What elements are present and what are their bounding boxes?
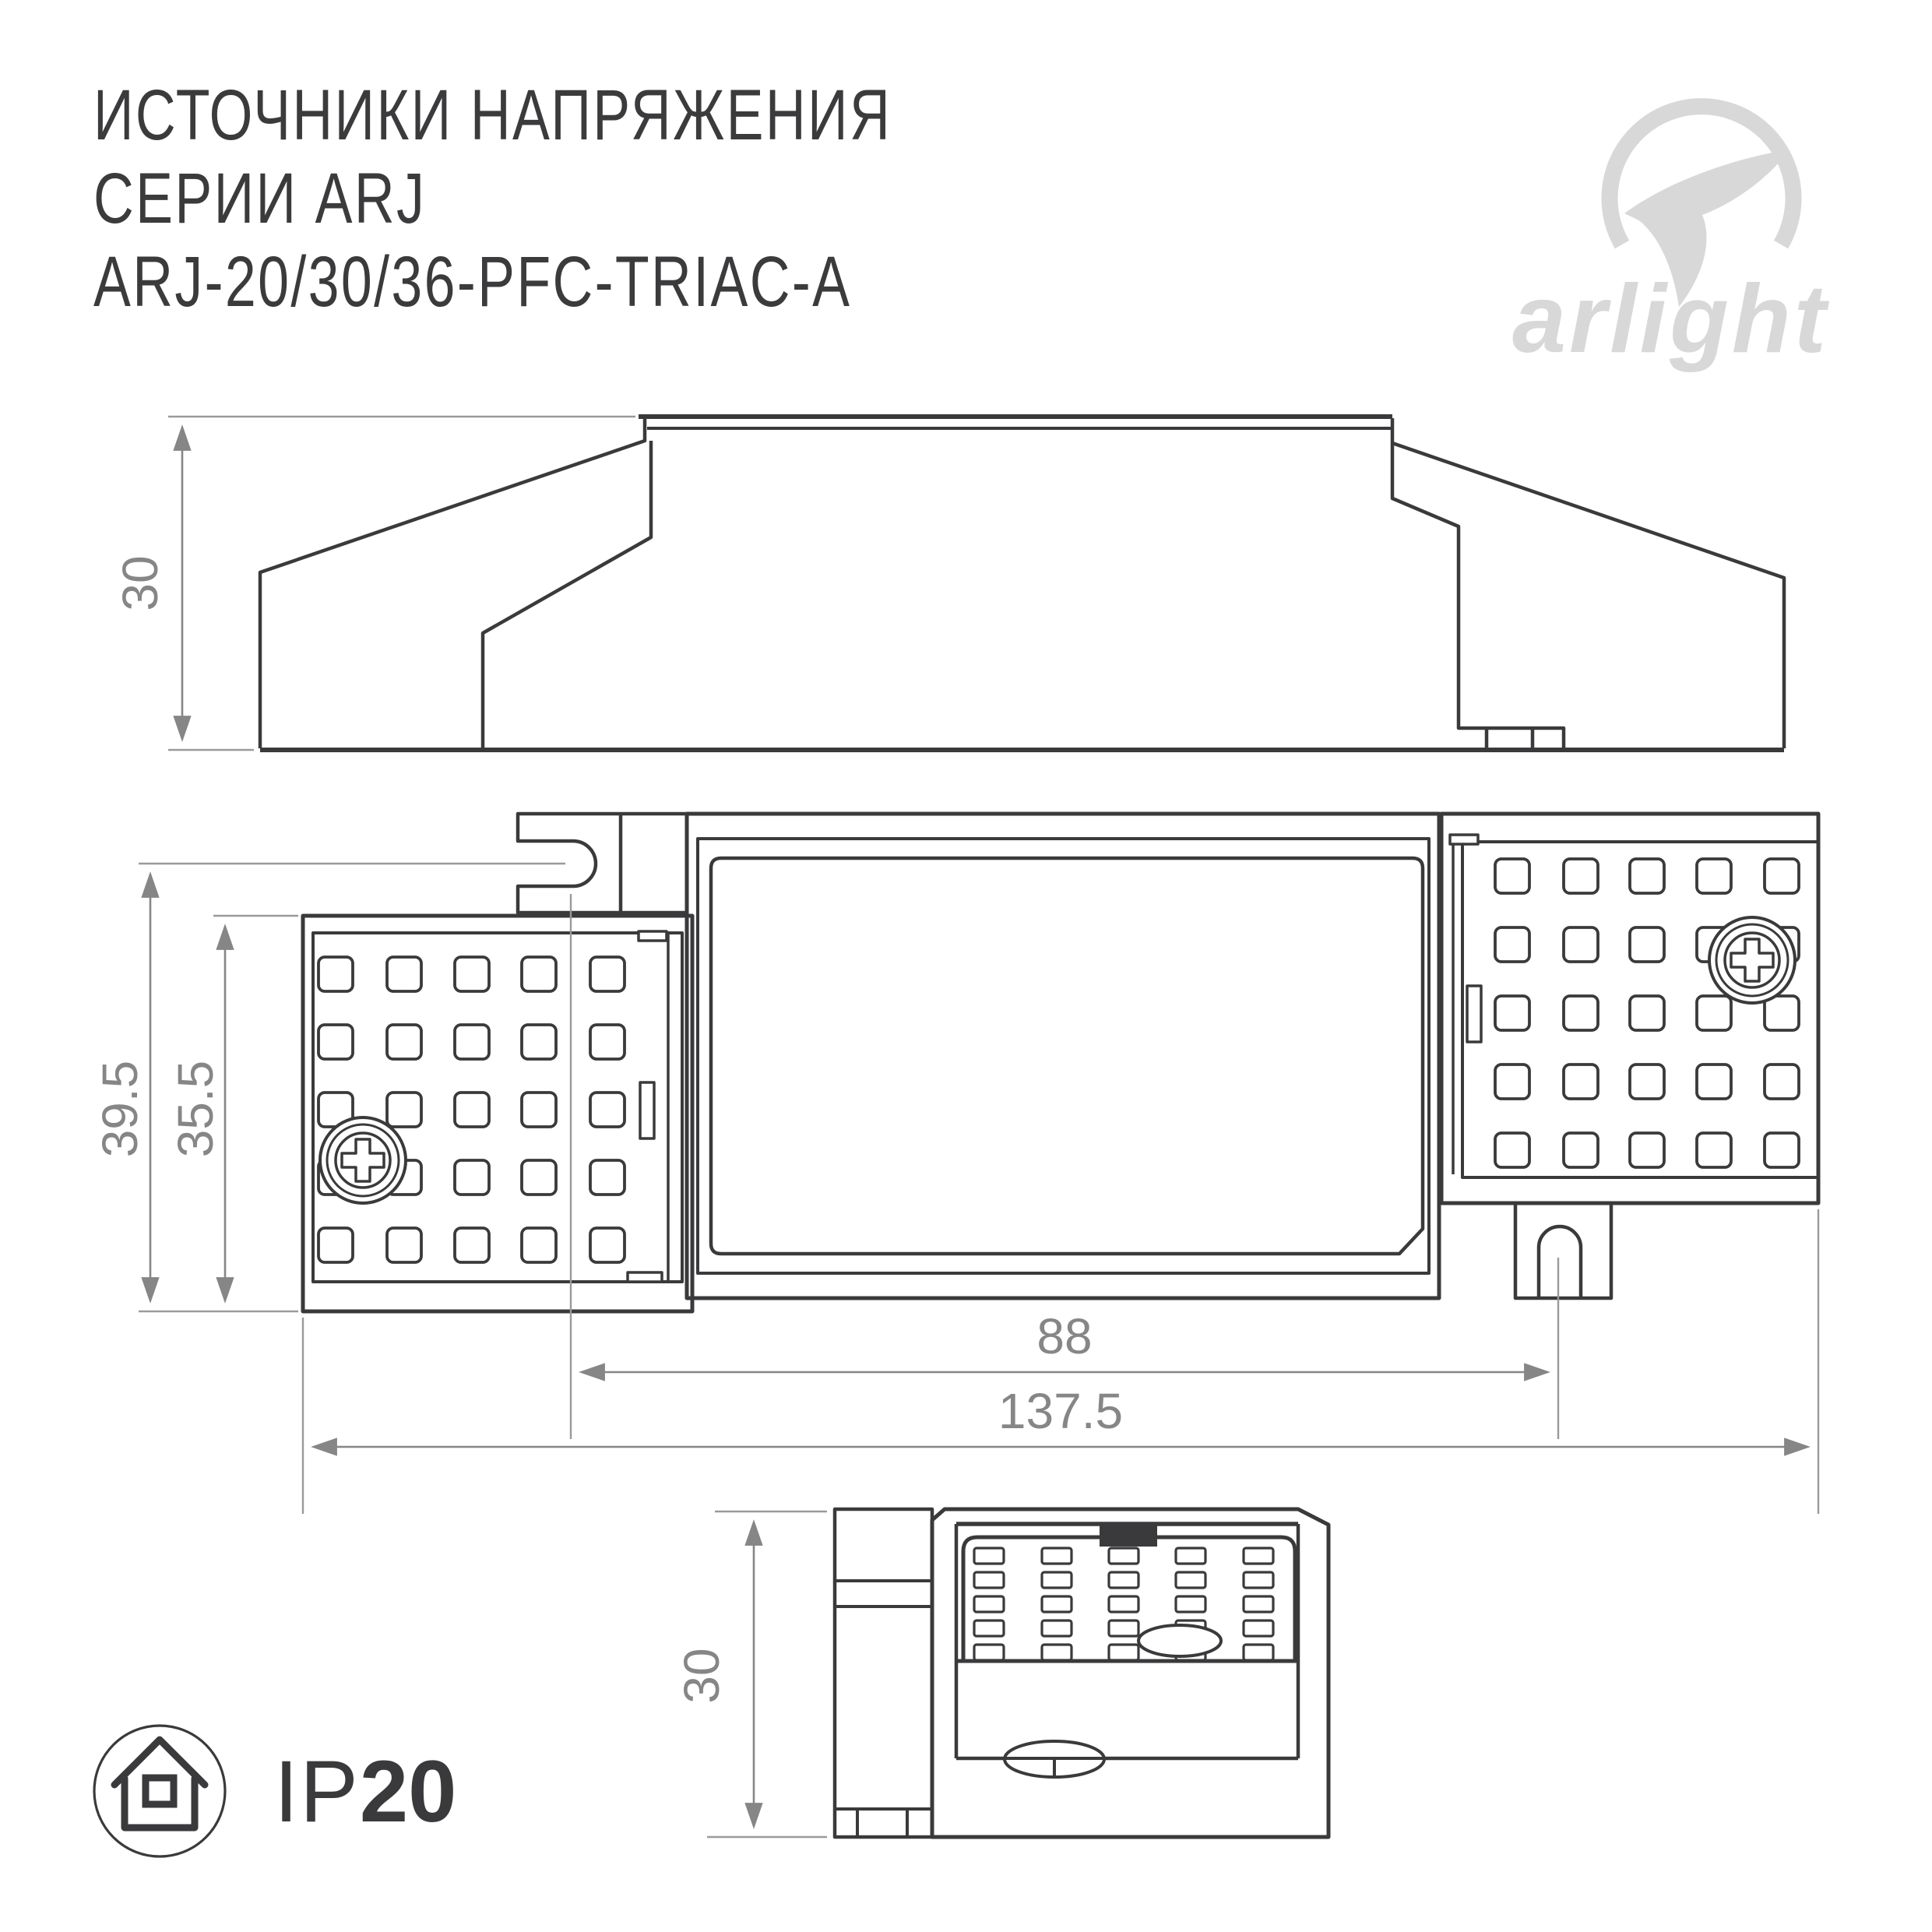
ip-badge-circle [94, 1726, 225, 1856]
connector-key-mark [1100, 1524, 1157, 1547]
ip-rating-label: IP20 [274, 1748, 456, 1835]
house-icon [114, 1740, 205, 1828]
left-block-vent-grid [318, 957, 625, 1262]
datasheet-page: ИСТОЧНИКИ НАПРЯЖЕНИЯ СЕРИИ ARJ ARJ-20/30… [0, 0, 1932, 1932]
end-view-vent-grid [974, 1548, 1273, 1660]
dim-label-hole-spacing: 88 [1036, 1308, 1092, 1364]
left-screw-icon [320, 1117, 406, 1203]
wire-entry-oval-upper [1138, 1625, 1221, 1656]
ip-rating-value: 20 [360, 1743, 457, 1840]
latch-clips [628, 835, 1481, 1282]
ip-protection-icon [94, 1726, 225, 1856]
dim-label-body-width: 35.5 [167, 1061, 223, 1158]
dim-label-side-height: 30 [112, 555, 168, 611]
side-view [260, 417, 1784, 750]
dim-label-overall-length: 137.5 [998, 1383, 1123, 1439]
dim-label-end-height: 30 [674, 1648, 730, 1703]
end-view [835, 1509, 1328, 1837]
top-view [303, 814, 1818, 1311]
right-screw-icon [1709, 917, 1795, 1003]
arlight-logo-wordmark: arlight [1512, 271, 1829, 368]
right-block-vent-grid [1495, 859, 1799, 1167]
side-view-dimension-30: 30 [112, 417, 635, 750]
dim-label-overall-width: 39.5 [92, 1061, 148, 1158]
end-view-dimension-30: 30 [674, 1511, 827, 1837]
ip-rating-prefix: IP [274, 1743, 360, 1840]
